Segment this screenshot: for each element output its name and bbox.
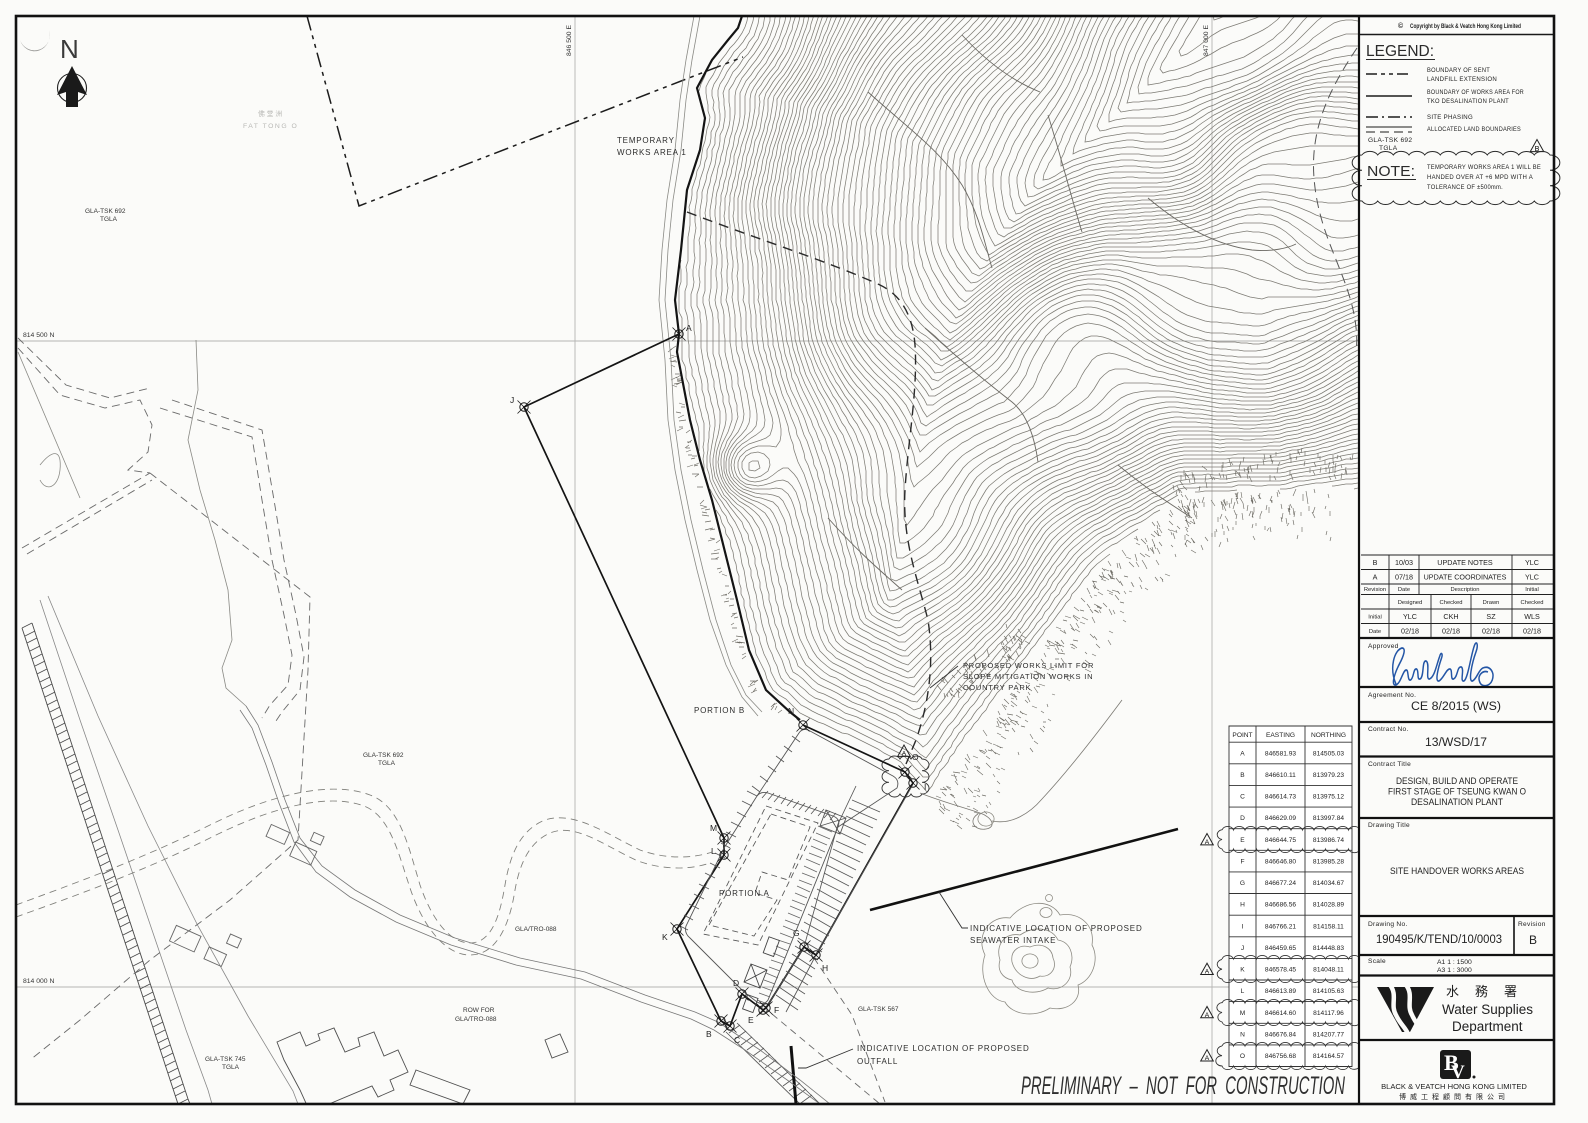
svg-text:814448.83: 814448.83 bbox=[1313, 945, 1345, 952]
svg-text:GLA/TRO-088: GLA/TRO-088 bbox=[455, 1016, 497, 1023]
svg-text:A: A bbox=[902, 751, 907, 758]
svg-text:NOTE:: NOTE: bbox=[1367, 164, 1415, 180]
svg-text:TGLA: TGLA bbox=[378, 760, 396, 767]
svg-text:ALLOCATED LAND BOUNDARIES: ALLOCATED LAND BOUNDARIES bbox=[1427, 126, 1521, 133]
svg-text:C: C bbox=[1240, 794, 1245, 801]
svg-text:190495/K/TEND/10/0003: 190495/K/TEND/10/0003 bbox=[1376, 934, 1502, 946]
svg-text:A: A bbox=[1205, 1012, 1210, 1019]
svg-text:813979.23: 813979.23 bbox=[1313, 772, 1345, 779]
svg-text:846766.21: 846766.21 bbox=[1265, 923, 1297, 930]
svg-text:B: B bbox=[1240, 772, 1245, 779]
svg-text:SLOPE MITIGATION WORKS IN: SLOPE MITIGATION WORKS IN bbox=[963, 672, 1093, 681]
svg-text:813985.28: 813985.28 bbox=[1313, 858, 1345, 865]
svg-text:佛 堂 洲: 佛 堂 洲 bbox=[258, 109, 282, 118]
svg-text:G: G bbox=[1240, 880, 1245, 887]
svg-text:Date: Date bbox=[1369, 629, 1381, 635]
svg-text:02/18: 02/18 bbox=[1482, 627, 1500, 636]
svg-text:YLC: YLC bbox=[1403, 612, 1417, 621]
svg-text:814034.67: 814034.67 bbox=[1313, 880, 1345, 887]
svg-text:E: E bbox=[748, 1015, 754, 1025]
svg-text:Date: Date bbox=[1398, 587, 1410, 593]
svg-text:©: © bbox=[1398, 22, 1404, 30]
svg-text:GLA-TSK 745: GLA-TSK 745 bbox=[205, 1056, 246, 1063]
svg-text:13/WSD/17: 13/WSD/17 bbox=[1425, 737, 1487, 749]
svg-text:SITE PHASING: SITE PHASING bbox=[1427, 114, 1473, 121]
svg-text:N: N bbox=[1240, 1031, 1245, 1038]
svg-text:SEAWATER INTAKE: SEAWATER INTAKE bbox=[970, 936, 1056, 945]
svg-text:L: L bbox=[711, 846, 716, 856]
svg-text:847 000 E: 847 000 E bbox=[1203, 25, 1210, 56]
svg-text:846614.73: 846614.73 bbox=[1265, 794, 1297, 801]
svg-text:HANDED OVER AT +6 MPD WITH A: HANDED OVER AT +6 MPD WITH A bbox=[1427, 174, 1533, 181]
svg-text:814117.96: 814117.96 bbox=[1313, 1010, 1344, 1017]
svg-text:846646.80: 846646.80 bbox=[1265, 858, 1297, 865]
svg-text:D: D bbox=[1240, 815, 1245, 822]
svg-text:Description: Description bbox=[1451, 587, 1480, 593]
svg-text:846459.65: 846459.65 bbox=[1265, 945, 1297, 952]
svg-text:TKO DESALINATION PLANT: TKO DESALINATION PLANT bbox=[1427, 98, 1509, 105]
svg-text:SZ: SZ bbox=[1486, 612, 1496, 621]
svg-text:Department: Department bbox=[1452, 1019, 1523, 1034]
svg-text:07/18: 07/18 bbox=[1395, 573, 1413, 582]
svg-text:10/03: 10/03 bbox=[1395, 558, 1413, 567]
svg-text:FIRST STAGE OF TSEUNG KWAN O: FIRST STAGE OF TSEUNG KWAN O bbox=[1388, 787, 1526, 797]
svg-text:813997.84: 813997.84 bbox=[1313, 815, 1345, 822]
svg-text:GLA-TSK 692: GLA-TSK 692 bbox=[363, 752, 404, 759]
svg-text:A: A bbox=[1373, 573, 1378, 582]
svg-text:C: C bbox=[734, 1035, 740, 1045]
svg-text:846 500 E: 846 500 E bbox=[566, 25, 573, 56]
svg-text:Checked: Checked bbox=[1440, 600, 1463, 606]
svg-text:814028.89: 814028.89 bbox=[1313, 902, 1345, 909]
svg-text:Scale: Scale bbox=[1368, 958, 1386, 965]
svg-text:TGLA: TGLA bbox=[222, 1064, 240, 1071]
svg-text:Drawn: Drawn bbox=[1483, 600, 1500, 606]
svg-text:ROW FOR: ROW FOR bbox=[463, 1007, 495, 1014]
svg-text:846578.45: 846578.45 bbox=[1265, 967, 1297, 974]
svg-text:814048.11: 814048.11 bbox=[1313, 967, 1344, 974]
svg-text:WLS: WLS bbox=[1524, 612, 1540, 621]
svg-text:COUNTRY PARK: COUNTRY PARK bbox=[963, 683, 1031, 692]
svg-text:PRELIMINARY – NOT FOR CONS: PRELIMINARY – NOT FOR CONSTRUCTION bbox=[1021, 1072, 1346, 1100]
svg-text:814 000 N: 814 000 N bbox=[23, 978, 54, 985]
svg-text:LEGEND:: LEGEND: bbox=[1366, 43, 1434, 60]
svg-text:F: F bbox=[774, 1005, 779, 1015]
svg-text:A: A bbox=[686, 323, 692, 333]
svg-text:TEMPORARY WORKS AREA 1 WILL BE: TEMPORARY WORKS AREA 1 WILL BE bbox=[1427, 164, 1541, 171]
svg-text:G: G bbox=[793, 928, 800, 938]
svg-text:846756.68: 846756.68 bbox=[1265, 1053, 1297, 1060]
svg-text:846676.84: 846676.84 bbox=[1265, 1031, 1297, 1038]
svg-text:GLA-TSK 692: GLA-TSK 692 bbox=[1368, 137, 1412, 144]
svg-text:A: A bbox=[1205, 839, 1210, 846]
svg-text:H: H bbox=[1240, 902, 1245, 909]
svg-text:Approved: Approved bbox=[1368, 643, 1399, 650]
svg-text:Revision: Revision bbox=[1518, 921, 1546, 928]
svg-text:WORKS AREA 1: WORKS AREA 1 bbox=[617, 148, 687, 157]
svg-text:B: B bbox=[1373, 558, 1378, 567]
svg-text:Contract Title: Contract Title bbox=[1368, 761, 1411, 768]
svg-text:N: N bbox=[60, 34, 80, 64]
svg-text:BLACK & VEATCH HONG KONG LIMIT: BLACK & VEATCH HONG KONG LIMITED bbox=[1381, 1082, 1527, 1091]
svg-text:FAT TONG O: FAT TONG O bbox=[243, 123, 298, 130]
svg-text:INDICATIVE LOCATION OF PROPOSE: INDICATIVE LOCATION OF PROPOSED bbox=[970, 924, 1143, 933]
svg-text:A3 1 : 3000: A3 1 : 3000 bbox=[1437, 967, 1472, 974]
svg-text:814505.03: 814505.03 bbox=[1313, 750, 1345, 757]
svg-text:GLA-TSK 692: GLA-TSK 692 bbox=[85, 208, 126, 215]
svg-text:PROPOSED WORKS LIMIT FOR: PROPOSED WORKS LIMIT FOR bbox=[963, 661, 1094, 670]
svg-text:814158.11: 814158.11 bbox=[1313, 923, 1344, 930]
svg-text:PORTION A: PORTION A bbox=[719, 889, 770, 898]
svg-text:J: J bbox=[1241, 945, 1244, 952]
svg-text:PORTION B: PORTION B bbox=[694, 706, 745, 715]
svg-text:02/18: 02/18 bbox=[1401, 627, 1419, 636]
svg-text:INDICATIVE LOCATION OF PROPOSE: INDICATIVE LOCATION OF PROPOSED bbox=[857, 1044, 1030, 1053]
svg-text:D: D bbox=[733, 978, 739, 988]
svg-text:H: H bbox=[822, 963, 828, 973]
svg-text:814164.57: 814164.57 bbox=[1313, 1053, 1345, 1060]
svg-text:A: A bbox=[1205, 1055, 1210, 1062]
svg-text:814207.77: 814207.77 bbox=[1313, 1031, 1345, 1038]
svg-text:EASTING: EASTING bbox=[1266, 732, 1295, 739]
svg-text:BOUNDARY OF WORKS AREA FOR: BOUNDARY OF WORKS AREA FOR bbox=[1427, 89, 1524, 96]
svg-text:Revision: Revision bbox=[1364, 587, 1386, 593]
svg-text:YLC: YLC bbox=[1525, 558, 1539, 567]
svg-text:846629.09: 846629.09 bbox=[1265, 815, 1297, 822]
svg-text:TGLA: TGLA bbox=[100, 216, 118, 223]
svg-text:I: I bbox=[1242, 923, 1244, 930]
svg-text:UPDATE COORDINATES: UPDATE COORDINATES bbox=[1424, 573, 1507, 582]
svg-text:SITE HANDOVER WORKS AREAS: SITE HANDOVER WORKS AREAS bbox=[1390, 866, 1524, 876]
svg-text:846686.56: 846686.56 bbox=[1265, 902, 1297, 909]
svg-text:N: N bbox=[788, 706, 794, 716]
svg-text:Drawing Title: Drawing Title bbox=[1368, 822, 1410, 829]
svg-text:NORTHING: NORTHING bbox=[1311, 732, 1346, 739]
svg-text:YLC: YLC bbox=[1525, 573, 1539, 582]
svg-text:Agreement No.: Agreement No. bbox=[1368, 692, 1416, 699]
svg-text:V: V bbox=[1451, 1062, 1465, 1083]
svg-text:Water Supplies: Water Supplies bbox=[1442, 1002, 1533, 1017]
svg-text:846610.11: 846610.11 bbox=[1265, 772, 1296, 779]
svg-text:DESALINATION PLANT: DESALINATION PLANT bbox=[1411, 797, 1503, 807]
svg-text:846581.93: 846581.93 bbox=[1265, 750, 1297, 757]
svg-text:CE 8/2015 (WS): CE 8/2015 (WS) bbox=[1411, 701, 1501, 713]
svg-text:B: B bbox=[706, 1029, 712, 1039]
svg-text:UPDATE NOTES: UPDATE NOTES bbox=[1437, 558, 1493, 567]
svg-text:813975.12: 813975.12 bbox=[1313, 794, 1345, 801]
svg-text:A: A bbox=[1205, 969, 1210, 976]
svg-text:E: E bbox=[1240, 837, 1245, 844]
svg-text:Initial: Initial bbox=[1525, 587, 1539, 593]
svg-text:TOLERANCE OF ±500mm.: TOLERANCE OF ±500mm. bbox=[1427, 184, 1503, 191]
svg-text:L: L bbox=[1241, 988, 1245, 995]
svg-text:M: M bbox=[1240, 1010, 1246, 1017]
svg-text:LANDFILL EXTENSION: LANDFILL EXTENSION bbox=[1427, 76, 1497, 83]
svg-text:M: M bbox=[710, 823, 717, 833]
svg-text:A1 1 : 1500: A1 1 : 1500 bbox=[1437, 959, 1472, 966]
svg-text:B: B bbox=[1529, 933, 1537, 947]
svg-text:OUTFALL: OUTFALL bbox=[857, 1057, 898, 1066]
svg-text:TEMPORARY: TEMPORARY bbox=[617, 136, 675, 145]
svg-text:BOUNDARY OF SENT: BOUNDARY OF SENT bbox=[1427, 67, 1490, 74]
svg-text:846644.75: 846644.75 bbox=[1265, 837, 1297, 844]
svg-text:J: J bbox=[510, 395, 514, 405]
svg-text:O: O bbox=[1240, 1053, 1245, 1060]
svg-text:F: F bbox=[1240, 858, 1244, 865]
svg-text:846614.60: 846614.60 bbox=[1265, 1010, 1297, 1017]
svg-text:博威工程顧問有限公司: 博威工程顧問有限公司 bbox=[1399, 1092, 1509, 1101]
svg-text:846677.24: 846677.24 bbox=[1265, 880, 1297, 887]
svg-text:814105.63: 814105.63 bbox=[1313, 988, 1345, 995]
svg-text:水務署: 水務署 bbox=[1446, 984, 1533, 999]
svg-text:POINT: POINT bbox=[1232, 732, 1252, 739]
svg-text:Copyright by Black & Veatch Ho: Copyright by Black & Veatch Hong Kong Li… bbox=[1410, 23, 1521, 30]
svg-text:GLA-TSK 567: GLA-TSK 567 bbox=[858, 1006, 899, 1013]
svg-text:02/18: 02/18 bbox=[1442, 627, 1460, 636]
svg-text:GLA/TRO-088: GLA/TRO-088 bbox=[515, 926, 557, 933]
svg-text:DESIGN, BUILD AND OPERATE: DESIGN, BUILD AND OPERATE bbox=[1396, 776, 1518, 786]
svg-text:CKH: CKH bbox=[1443, 612, 1458, 621]
svg-text:Designed: Designed bbox=[1398, 600, 1423, 606]
svg-text:846613.89: 846613.89 bbox=[1265, 988, 1297, 995]
svg-text:K: K bbox=[1240, 967, 1245, 974]
svg-text:A: A bbox=[1240, 750, 1245, 757]
svg-text:Contract No.: Contract No. bbox=[1368, 726, 1409, 733]
svg-text:813986.74: 813986.74 bbox=[1313, 837, 1345, 844]
svg-text:K: K bbox=[662, 932, 668, 942]
svg-text:Drawing No.: Drawing No. bbox=[1368, 921, 1408, 928]
svg-text:Initial: Initial bbox=[1368, 615, 1382, 621]
svg-text:02/18: 02/18 bbox=[1523, 627, 1541, 636]
svg-text:Checked: Checked bbox=[1521, 600, 1544, 606]
svg-text:TGLA: TGLA bbox=[1379, 145, 1398, 152]
svg-text:814 500 N: 814 500 N bbox=[23, 332, 54, 339]
